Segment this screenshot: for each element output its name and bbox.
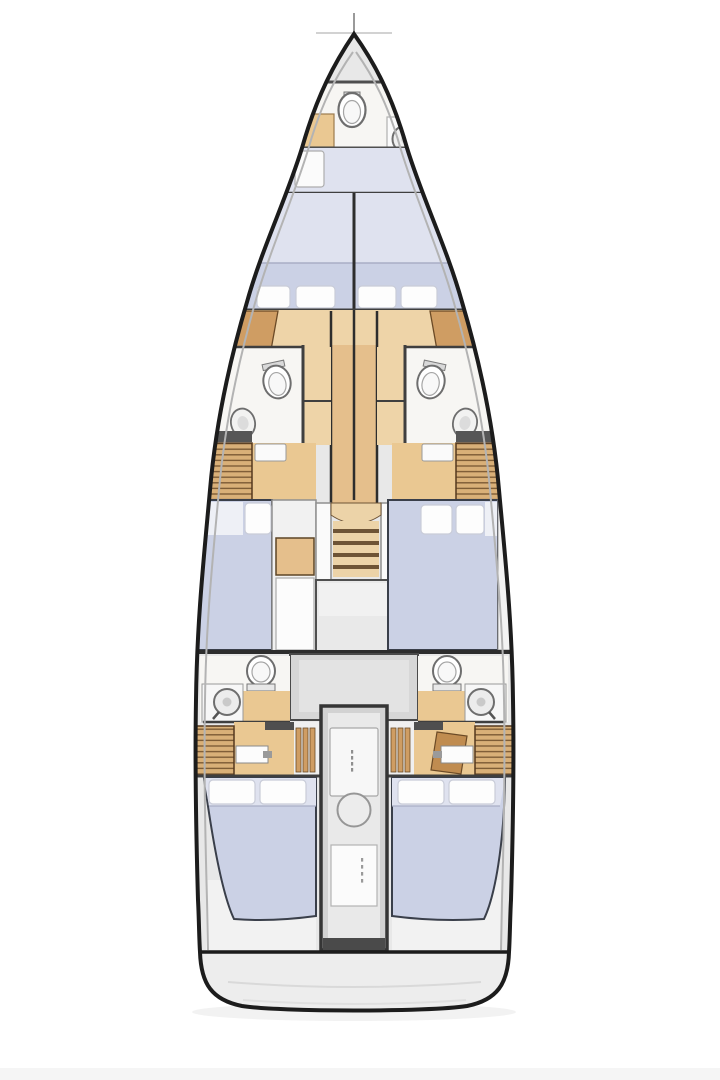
port-corridor-floor — [303, 347, 331, 445]
engine-panel-inner — [299, 660, 409, 712]
port-aft-head — [200, 656, 290, 722]
vanity-top — [441, 746, 473, 763]
starboard-aft-head — [418, 656, 508, 722]
starboard-trim — [413, 722, 443, 730]
interior — [190, 82, 520, 1014]
yacht-floor-plan-page — [0, 0, 720, 1080]
port-aft-cabin — [204, 778, 316, 950]
dresser — [276, 538, 314, 575]
pillow — [421, 505, 452, 534]
starboard-shelf — [422, 444, 453, 461]
toilet-icon — [247, 656, 275, 691]
starboard-aft-cabin — [392, 778, 505, 950]
yacht-floor-plan — [0, 0, 720, 1080]
toilet-tank — [247, 684, 275, 691]
pillow — [456, 505, 484, 534]
galley-sink-icon — [338, 794, 371, 827]
port-shelf — [255, 444, 286, 461]
forward-cabin-shelf — [256, 148, 452, 193]
stair-rail-port — [316, 503, 331, 581]
head-floor-teak — [243, 691, 290, 722]
toilet-tank — [433, 684, 461, 691]
toilet-seat — [438, 662, 456, 682]
sink-drain — [477, 698, 486, 707]
head-floor-teak — [418, 691, 465, 722]
landing-mat — [319, 583, 393, 616]
pillow — [401, 286, 437, 308]
pillow — [209, 780, 255, 804]
stern-locker — [331, 845, 377, 906]
toilet-seat — [252, 662, 270, 682]
toilet-icon — [433, 656, 461, 691]
pillow — [296, 286, 335, 308]
forward-v-berth — [229, 193, 479, 310]
column-end-wall — [323, 938, 385, 950]
footer-shade — [0, 1068, 720, 1080]
galley-worktop — [330, 728, 378, 796]
vanity-faucet — [433, 751, 442, 758]
port-vanity — [236, 746, 272, 763]
pillow — [449, 780, 495, 804]
port-locker-top — [206, 431, 252, 442]
starboard-corridor-floor — [377, 347, 405, 445]
port-vertical-slats — [296, 728, 315, 772]
vanity-faucet — [263, 751, 272, 758]
port-trim — [265, 722, 295, 730]
sink-icon — [465, 684, 506, 722]
pillow — [257, 286, 290, 308]
pillow — [358, 286, 396, 308]
starboard-vertical-slats — [391, 728, 410, 772]
toilet-seat — [344, 101, 361, 124]
galley-column — [321, 706, 387, 950]
toilet-icon — [339, 92, 366, 127]
cabinet — [276, 578, 314, 650]
pillow — [398, 780, 444, 804]
stair-steps — [333, 521, 379, 577]
pillow — [260, 780, 306, 804]
pillow — [245, 503, 271, 534]
sink-drain — [223, 698, 232, 707]
sink-icon — [202, 684, 243, 722]
